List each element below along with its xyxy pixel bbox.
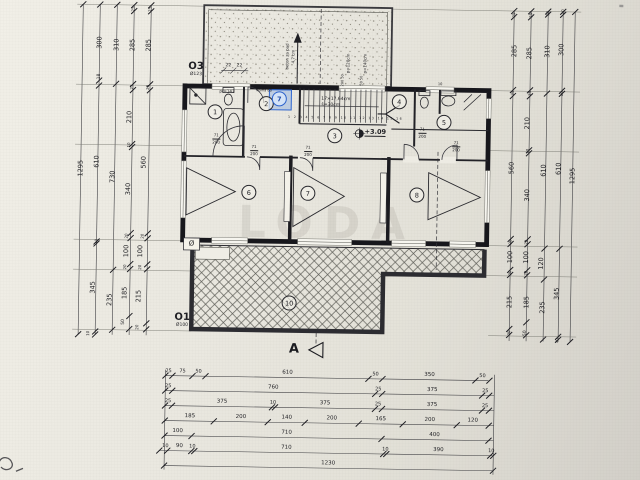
dim-label: 75 [179,369,185,374]
dim-label: 375 [217,400,228,406]
opening-o3-size: Ø123 [188,73,204,78]
scanned-floorplan-screenshot: LODA [0,0,640,480]
dim-label: pr=143 [219,89,234,93]
dim-label: 10 [488,449,494,454]
corridor-lines [299,124,488,131]
dim-label: 25 [130,84,134,89]
dim-label: 200 [418,133,426,139]
dim-label: 25 [528,91,532,96]
dim-label: 340 [125,183,132,196]
dim-label: 10 [189,444,195,449]
dim-label: 25 [146,85,150,90]
dim-label: 20 [525,240,529,245]
terrace-walkway [195,247,229,260]
dim-label: 50 [195,370,201,375]
dim-label: 210 [126,111,133,124]
dim-label: 285 [129,39,136,52]
dim-label: 50 [524,330,529,336]
dim-label: 22 [236,64,242,69]
toilet-bowl-1 [224,94,232,105]
dim-label: +3.09 [365,129,387,137]
scan-smudge [0,458,23,472]
dim-label: 10 [526,149,530,154]
dim-label: 375 [427,388,438,394]
dim-label: 560 [140,156,147,169]
dim-label: 200 50 [341,74,345,86]
dim-label: 300 [558,44,565,57]
dim-label: 215 [135,290,142,303]
dim-label: 200 [425,418,436,424]
sink-basin [442,96,455,106]
opening-label-o1: O1 Ø100 [174,313,190,329]
dim-label: 710 [281,446,292,452]
dim-label: 20 [138,265,142,270]
dim-label: 10 [162,444,168,449]
bottom-dimension-lines [159,370,495,475]
dim-label: 25 [165,384,171,389]
dim-label: 185 [185,414,196,420]
dim-label: 140 [282,416,293,422]
opening-o1-name: O1 [174,313,190,323]
dim-label: 71 [454,141,459,145]
dim-label: 50 [122,319,127,325]
dim-label: 310 [544,45,551,58]
dim-label: 1295 [569,168,576,185]
dim-label: 10 [95,239,99,244]
section-marker-label: A [289,342,299,357]
dim-label: 285 [526,47,533,60]
dim-label: 100 [507,251,514,264]
dim-label: 100 [172,429,183,435]
scan-dot [619,5,623,8]
dim-label: 10 [127,142,131,147]
dim-label: š=30cm [321,104,340,109]
dim-label: 20 [509,239,513,244]
dim-label: 10 [438,83,443,87]
dim-label: 71 [214,133,219,137]
dim-label: 710 [281,431,292,437]
dim-label: 4,7 cm [291,50,295,64]
dim-label: 100 [137,245,144,258]
lower-terrace [182,238,484,334]
dim-label: 375 [320,401,331,407]
dim-label: 185 [523,296,530,309]
drawing-sheet: LODA [0,0,640,480]
dim-label: 215 [506,296,513,309]
dim-label: 200 [452,146,460,152]
dim-label: 25 [512,12,516,17]
opening-o3-name: O3 [188,62,204,72]
dim-label: 235 [106,293,113,306]
dim-label: 90 [176,444,183,450]
dim-label: 210 [524,117,531,130]
dim-label: 20 [524,271,528,276]
dim-label: 20 [508,270,512,275]
dim-label: 25 [511,90,515,95]
dim-label: 760 [268,385,279,391]
dim-label: 730 [109,170,116,183]
dim-label: 300 [96,36,103,49]
dim-label: 10 [382,448,388,453]
dim-label: 345 [90,281,97,294]
dim-label: 20 [135,325,139,330]
dim-label: 610 [93,155,100,168]
dim-label: 25 [148,7,152,12]
dim-label: 71 [420,128,425,132]
dim-label: 50 50 [360,76,364,86]
dim-label: 200 [236,415,247,421]
dim-label: visina 80 [256,89,272,93]
dim-label: 1295 [77,160,84,177]
dim-label: 20 [507,330,511,335]
dim-label: 25 [165,369,171,374]
dim-label: 285 [145,39,152,52]
dim-label: 18 [98,74,103,80]
dim-label: 20 [125,233,129,238]
dim-label: 71 [251,145,256,149]
dim-label: 390 [433,448,444,454]
dim-label: 610 [555,162,562,175]
dim-label: 25 [375,402,381,407]
slope-arrow [297,40,298,84]
dim-label: 100 [523,251,530,264]
dim-label: 120 [467,419,478,425]
dim-label: 610 [540,164,547,177]
dim-label: 25 [529,13,533,18]
dim-label: 1230 [321,461,335,467]
dim-label: 25 [482,404,488,409]
dim-label: 200 [304,151,312,157]
dim-label: 375 [427,403,438,409]
room-triangle-symbols [186,166,481,230]
dim-label: 350 [424,373,435,379]
dim-label: Ø [189,240,195,247]
dim-label: 120 [538,257,545,270]
dim-label: 165 [376,417,387,423]
dim-label: beton za pad [285,43,289,69]
section-marker-triangle [309,342,323,357]
dim-label: 20 [123,264,127,269]
opening-o1-size: Ø100 [174,324,190,329]
dim-label: 10 [555,338,559,343]
dim-label: 20 [141,234,145,239]
dim-label: 185 [121,287,128,300]
dim-label: 400 [429,433,440,439]
dim-label: 25 [482,389,488,394]
dim-label: 10 [270,401,276,406]
window-symbol [464,94,481,110]
dim-label: 25 [131,6,135,11]
dim-label: 200 [327,416,338,422]
dim-label: 285 [511,45,518,58]
dim-label: p=140cm [363,54,367,74]
dim-label: 200 [212,139,220,145]
dim-label: p=120cm [346,54,350,74]
dim-label: 345 [553,287,560,300]
dim-label: 71 [305,146,310,150]
dim-label: 310 [113,39,120,52]
dim-label: 560 [508,162,515,175]
dim-label: 25 [165,399,171,404]
dim-label: 10 [546,11,550,16]
dim-label: 610 [282,371,293,377]
room-number-7: 7 [300,186,315,201]
dim-label: 235 [539,301,546,314]
dim-label: 50 [479,374,485,379]
toilet-bowl-2 [420,97,428,108]
dim-label: 100 [123,245,130,258]
dim-label: 200 [250,150,258,156]
dim-label: 10 [560,91,564,96]
dim-label: 22 [225,64,231,69]
dim-label: 10 [86,331,90,336]
dim-label: 10 [561,9,565,14]
opening-label-o3: O3 Ø123 [188,62,204,78]
dim-label: 25 [375,387,381,392]
dim-label: 340 [524,189,531,202]
dim-label: 50 [372,372,378,377]
